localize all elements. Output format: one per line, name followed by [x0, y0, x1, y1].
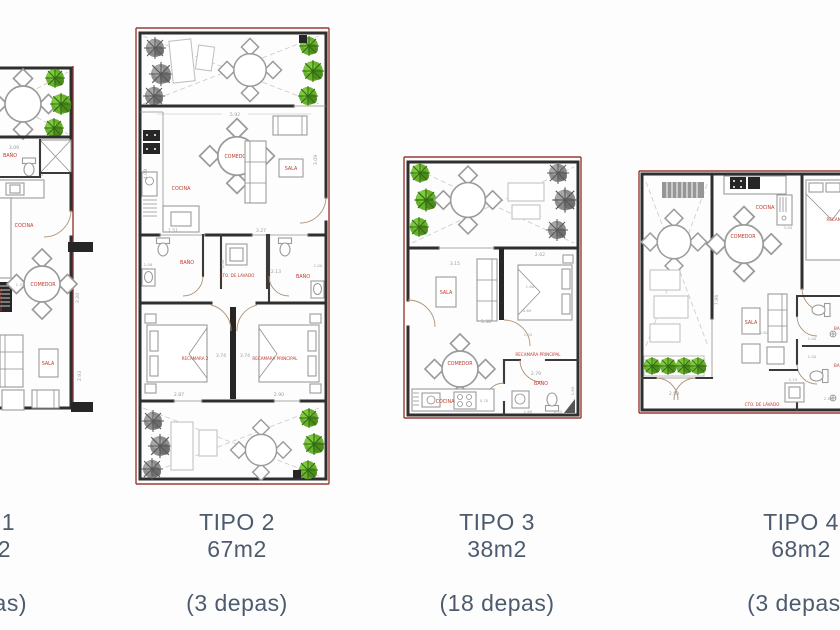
sofa-icon	[477, 259, 497, 321]
dining-table-icon	[707, 207, 782, 282]
dimension-label: 1.35	[16, 282, 25, 287]
terrace-table-icon	[218, 38, 281, 101]
dimension-label: 2.13	[271, 269, 281, 275]
plan-depas-tipo2: (3 depas)	[157, 590, 317, 617]
room-label-recamara-principal: RECAMARA PRINCIPAL	[515, 352, 561, 357]
shower-icon	[564, 399, 575, 413]
dimension-label: 2.90	[274, 392, 284, 398]
toilet-icon	[810, 370, 828, 383]
dimension-label: 2.62	[535, 252, 545, 258]
plant-icon	[44, 118, 64, 138]
dimension-label: 1.60	[524, 409, 533, 414]
room-label-comedor: COMEDOR	[30, 282, 56, 288]
dimension-label: 4.09	[143, 169, 149, 179]
dimension-label: 2.79	[531, 371, 541, 377]
room-label-lavado: CTO. DE LAVADO	[745, 402, 780, 407]
dimension-label: 3.27	[256, 228, 266, 234]
door-arc	[408, 300, 435, 327]
room-label-recamara: RECAMARA	[827, 217, 840, 222]
room-label-bano2: BAÑO	[296, 273, 310, 280]
floor-plan-tipo3: 3.15 2.62 SALA 1.80 0.69 5.38 1.05 RECAM…	[400, 155, 585, 425]
terrace-table-icon	[434, 166, 502, 234]
plant-icon	[659, 357, 677, 375]
dimension-label: 0.70	[480, 398, 489, 403]
door-arc	[269, 276, 289, 296]
dimension-label: 1.00	[314, 263, 323, 268]
dimension-label: 3.09	[9, 145, 19, 151]
floor-plan-tipo4: 2.58 7.96 COCINA 3.05 2.89 COMEDOR RECAM…	[636, 168, 840, 420]
plan-depas-tipo3: (18 depas)	[417, 590, 577, 617]
plant-icon	[298, 86, 318, 106]
terrace-table-icon	[641, 209, 706, 274]
plan-title-tipo3: TIPO 3	[417, 509, 577, 536]
plant-gray-icon	[149, 62, 173, 86]
plan-title-tipo2: TIPO 2	[157, 509, 317, 536]
plant-gray-icon	[547, 162, 569, 184]
plant-gray-icon	[143, 85, 165, 107]
room-label-sala: SALA	[42, 361, 55, 367]
plant-gray-icon	[148, 434, 172, 458]
room-label-cocina: COCINA	[436, 399, 455, 405]
plant-icon	[643, 357, 661, 375]
dimension-label: 0.45	[554, 409, 563, 414]
dimension-label: 3.20	[75, 293, 81, 303]
room-label-comedor: COMEDOR	[730, 234, 756, 240]
room-label-recamara2: RECAMARA 2	[182, 356, 209, 361]
dimension-label: 2.87	[174, 392, 184, 398]
dimension-label: 0.98	[220, 259, 225, 268]
plant-gray-icon	[144, 37, 166, 59]
dimension-label: 1.80	[526, 284, 535, 289]
dimension-label: 1.51	[168, 228, 178, 234]
floor-plan-tipo2: 5.92 4.09 COMEDOR COCINA SALA 3.09 1.51 …	[133, 26, 333, 492]
plan-area-tipo3: 38m2	[417, 536, 577, 563]
plant-icon	[689, 357, 707, 375]
plan-depas-tipo1: as)	[0, 590, 27, 617]
plant-gray-icon	[552, 187, 577, 212]
door-arc	[504, 320, 530, 346]
plant-icon	[302, 60, 324, 82]
plant-icon	[50, 93, 72, 115]
stove-icon	[454, 392, 476, 409]
dimension-label: 2.13	[824, 396, 833, 401]
door-arc	[300, 197, 326, 223]
fridge-icon	[777, 195, 792, 225]
sofa-icon	[768, 294, 787, 342]
plant-icon	[299, 408, 319, 428]
room-label-sala: SALA	[285, 166, 298, 172]
dimension-label: 1.15	[789, 377, 798, 382]
dimension-label: 3.05	[784, 225, 793, 230]
room-label-sala: SALA	[745, 320, 758, 326]
plant-gray-icon	[142, 410, 164, 432]
sink-icon	[512, 391, 529, 408]
toilet-icon	[812, 304, 830, 317]
door-arc	[520, 360, 542, 382]
room-label-sala: SALA	[440, 290, 453, 296]
plant-icon	[409, 217, 429, 237]
room-label-bano1: BAÑO	[834, 326, 840, 331]
room-label-lavado: CTO. DE LAVADO	[220, 273, 255, 278]
floorplan-sheet: 3.09 1.97 BAÑO 1.50 COCINA COMEDOR 1.35 …	[0, 0, 840, 630]
dimension-label: 1.06	[144, 262, 153, 267]
room-label-cocina: COCINA	[756, 205, 775, 211]
plan-area-tipo2: 67m2	[157, 536, 317, 563]
dimension-label: 1.00	[808, 336, 817, 341]
dimension-label: 1.00	[808, 354, 817, 359]
room-label-partial: RECAMARA	[0, 288, 3, 311]
plant-icon	[303, 433, 325, 455]
room-label-bano2: BAÑO	[834, 363, 840, 368]
dimension-label: 0.69	[523, 308, 532, 313]
room-label-bano1: BAÑO	[180, 259, 194, 266]
room-label-comedor: COMEDOR	[447, 361, 473, 367]
room-label-bano: BAÑO	[534, 380, 548, 387]
dimension-label: 2.62	[760, 330, 769, 335]
stove-icon	[730, 177, 746, 189]
plan-area-tipo1: 2	[0, 536, 11, 563]
room-label-cocina: COCINA	[172, 186, 191, 192]
dimension-label: 3.74	[240, 353, 250, 359]
door-arc	[44, 210, 71, 237]
toilet-icon	[279, 238, 292, 256]
plant-gray-icon	[141, 458, 163, 480]
dimension-label: 3.15	[450, 261, 460, 267]
dimension-label: 2.93	[77, 371, 83, 381]
door-arc	[183, 276, 203, 296]
terrace-table-icon	[231, 420, 292, 481]
plan-area-tipo4: 68m2	[721, 536, 840, 563]
dimension-label: 3.09	[313, 155, 319, 165]
dimension-label: 3.74	[216, 353, 226, 359]
sofa-icon	[245, 141, 266, 203]
room-label-bano: BAÑO	[3, 152, 17, 159]
plan-title-tipo1: 1	[0, 509, 15, 536]
lounge-icon	[662, 182, 704, 198]
dimension-label: 1.60	[570, 386, 575, 395]
dimension-label: 5.38	[481, 319, 491, 325]
floor-plan-tipo1: 3.09 1.97 BAÑO 1.50 COCINA COMEDOR 1.35 …	[0, 60, 95, 430]
plan-title-tipo4: TIPO 4	[721, 509, 840, 536]
plant-icon	[45, 68, 65, 88]
toilet-icon	[23, 158, 36, 176]
plan-depas-tipo4: (3 depas)	[718, 590, 840, 617]
plant-gray-icon	[546, 219, 568, 241]
dimension-label: 2.58	[669, 391, 679, 397]
room-label-recamara-principal: RECAMARA PRINCIPAL	[252, 356, 298, 361]
room-label-cocina: COCINA	[15, 223, 34, 229]
toilet-icon	[157, 238, 170, 256]
plant-icon	[410, 163, 430, 183]
dimension-label: 5.92	[230, 112, 240, 118]
dimension-label: 7.96	[714, 295, 720, 305]
stove-icon	[143, 130, 160, 141]
